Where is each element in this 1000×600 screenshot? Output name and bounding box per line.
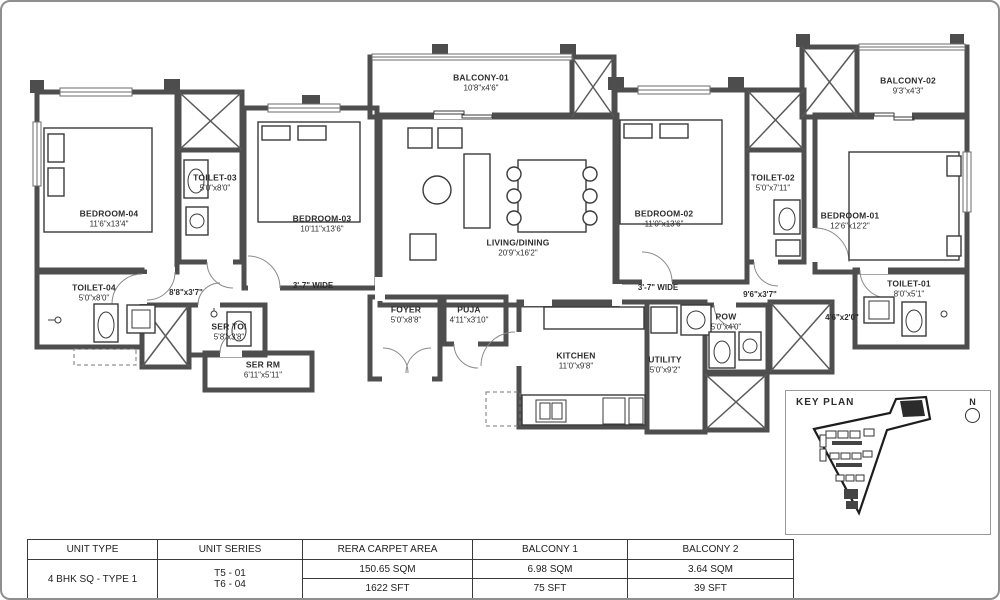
toilet-fixture-icon [864, 297, 947, 336]
room-label-toilet-01: TOILET-01 8'0"x5'1" [887, 278, 931, 299]
room-label-bedroom-04: BEDROOM-04 11'6"x13'4" [80, 208, 139, 229]
room-label-bedroom-02: BEDROOM-02 11'0"x13'6" [635, 208, 694, 229]
room-name: TOILET-01 [887, 278, 931, 289]
room-name: TOILET-04 [72, 282, 116, 293]
room-dim: 12'6"x12'2" [821, 221, 880, 231]
site-plan-drawing [786, 391, 989, 533]
north-circle-icon [965, 408, 980, 423]
room-name: PUJA [450, 304, 489, 315]
room-label-ser-rm: SER RM 6'11"x5'11" [244, 359, 282, 380]
room-name: UTILITY [648, 354, 682, 365]
room-name: SER RM [244, 359, 282, 370]
toilet-fixture-icon [48, 304, 155, 342]
room-label-utility: UTILITY 5'0"x9'2" [648, 354, 682, 375]
room-label-living-dining: LIVING/DINING 20'9"x16'2" [486, 237, 549, 258]
room-label-toilet-03: TOILET-03 5'0"x8'0" [193, 172, 237, 193]
room-name: TOILET-03 [193, 172, 237, 183]
room-dim: 11'0"x9'8" [556, 361, 595, 371]
sofa-icon [408, 128, 490, 260]
unit-series-line2: T6 - 04 [214, 579, 246, 590]
room-label-toilet-02: TOILET-02 5'0"x7'11" [751, 172, 795, 193]
room-label-ser-toi: SER TOI 5'8"x3'8" [211, 321, 246, 342]
washer-icon [651, 305, 711, 335]
room-dim: 20'9"x16'2" [486, 248, 549, 258]
key-plan-title: KEY PLAN [796, 397, 854, 408]
floor-plan-page: BEDROOM-04 11'6"x13'4" TOILET-03 5'0"x8'… [0, 0, 1000, 600]
north-label: N [965, 397, 980, 407]
room-name: KITCHEN [556, 350, 595, 361]
room-label-puja: PUJA 4'11"x3'10" [450, 304, 489, 325]
spec-rera-sqm: 150.65 SQM [303, 560, 473, 579]
room-dim: 5'0"x8'8" [391, 315, 422, 325]
room-label-balcony-01: BALCONY-01 10'8"x4'6" [453, 72, 509, 93]
dining-table-icon [507, 160, 597, 232]
spec-balcony2-sqm: 3.64 SQM [628, 560, 793, 579]
spec-header-unit-series: UNIT SERIES [158, 540, 303, 560]
room-name: POW [711, 311, 742, 322]
spec-rera-sft: 1622 SFT [303, 579, 473, 598]
room-dim: 5'0"x7'11" [751, 183, 795, 193]
highlighted-unit [900, 400, 925, 417]
toilet-fixture-icon [709, 332, 761, 368]
room-name: BEDROOM-02 [635, 208, 694, 219]
dashed-ledge [74, 349, 136, 365]
room-dim: 4'11"x3'10" [450, 315, 489, 325]
toilet-fixture-icon [774, 200, 800, 256]
spec-unit-series-value: T5 - 01 T6 - 04 [158, 560, 303, 598]
room-dim: 5'0"x9'2" [648, 365, 682, 375]
toilet-fixture-icon [184, 160, 208, 235]
passage-label-toilet1: 4'6"x2'0" [825, 313, 859, 323]
room-dim: 5'0"x8'0" [72, 293, 116, 303]
room-label-pow: POW 5'0"x4'0" [711, 311, 742, 332]
spec-header-unit-type: UNIT TYPE [28, 540, 158, 560]
room-dim: 10'11"x13'6" [293, 224, 352, 234]
spec-unit-type-value: 4 BHK SQ - TYPE 1 [28, 560, 158, 598]
room-label-bedroom-03: BEDROOM-03 10'11"x13'6" [293, 213, 352, 234]
room-name: BALCONY-02 [880, 75, 936, 86]
passage-label-right-wide: 3'-7" WIDE [638, 283, 678, 293]
room-dim: 9'3"x4'3" [880, 86, 936, 96]
passage-label-left-corridor: 8'8"x3'7" [169, 288, 203, 298]
spec-header-balcony-1: BALCONY 1 [473, 540, 628, 560]
room-name: BEDROOM-04 [80, 208, 139, 219]
room-dim: 11'6"x13'4" [80, 219, 139, 229]
spec-balcony2-sft: 39 SFT [628, 579, 793, 598]
room-dim: 11'0"x13'6" [635, 219, 694, 229]
room-label-toilet-04: TOILET-04 5'0"x8'0" [72, 282, 116, 303]
passage-label-left-wide: 3'-7" WIDE [293, 281, 333, 291]
dashed-ledge [486, 392, 520, 426]
room-dim: 8'0"x5'1" [887, 289, 931, 299]
room-dim: 6'11"x5'11" [244, 370, 282, 380]
room-dim: 5'8"x3'8" [211, 332, 246, 342]
room-label-foyer: FOYER 5'0"x8'8" [391, 304, 422, 325]
spec-balcony1-sqm: 6.98 SQM [473, 560, 628, 579]
room-label-kitchen: KITCHEN 11'0"x9'8" [556, 350, 595, 371]
spec-header-balcony-2: BALCONY 2 [628, 540, 793, 560]
spec-header-rera-carpet-area: RERA CARPET AREA [303, 540, 473, 560]
bed-icon [849, 152, 961, 260]
bed-icon [258, 122, 360, 222]
window-icons [33, 44, 971, 212]
room-name: BEDROOM-03 [293, 213, 352, 224]
room-dim: 10'8"x4'6" [453, 83, 509, 93]
key-plan: KEY PLAN N [785, 390, 991, 535]
room-label-balcony-02: BALCONY-02 9'3"x4'3" [880, 75, 936, 96]
room-name: TOILET-02 [751, 172, 795, 183]
room-dim: 5'0"x4'0" [711, 322, 742, 332]
room-name: BEDROOM-01 [821, 210, 880, 221]
north-indicator: N [965, 397, 980, 423]
unit-series-line1: T5 - 01 [214, 568, 246, 579]
room-dim: 5'0"x8'0" [193, 183, 237, 193]
room-name: LIVING/DINING [486, 237, 549, 248]
room-name: SER TOI [211, 321, 246, 332]
room-name: BALCONY-01 [453, 72, 509, 83]
room-name: FOYER [391, 304, 422, 315]
room-label-bedroom-01: BEDROOM-01 12'6"x12'2" [821, 210, 880, 231]
spec-balcony1-sft: 75 SFT [473, 579, 628, 598]
passage-label-right-corridor: 9'6"x3'7" [743, 290, 777, 300]
spec-table: UNIT TYPE UNIT SERIES RERA CARPET AREA B… [27, 539, 794, 599]
